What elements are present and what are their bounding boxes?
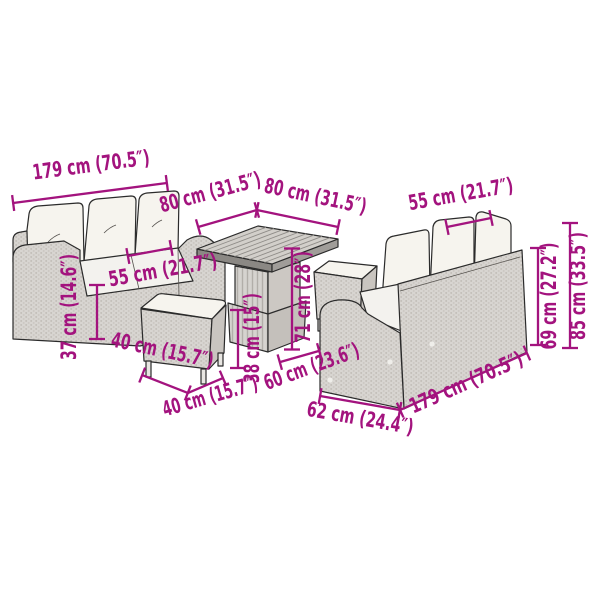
dim-label-right-sofa-seat-width: 55 cm (21.7″) xyxy=(407,173,516,215)
product-dimension-diagram: 179 cm (70.5″) 80 cm (31.5″) 80 cm (31.5… xyxy=(0,0,600,600)
dim-label-table-width: 80 cm (31.5″) xyxy=(262,174,369,219)
dim-label-right-sofa-back-height: 69 cm (27.2″) xyxy=(537,243,561,350)
dim-label-table-depth: 80 cm (31.5″) xyxy=(157,167,264,217)
dim-label-left-sofa-width: 179 cm (70.5″) xyxy=(31,146,151,185)
diagram-svg: 179 cm (70.5″) 80 cm (31.5″) 80 cm (31.5… xyxy=(0,0,600,600)
dim-label-right-sofa-total-height: 85 cm (33.5″) xyxy=(566,232,590,340)
dim-label-stool-height: 38 cm (15″) xyxy=(240,293,264,383)
dim-label-table-height: 71 cm (28″) xyxy=(291,251,315,343)
dim-label-left-sofa-seat-height: 37 cm (14.6″) xyxy=(57,254,81,360)
